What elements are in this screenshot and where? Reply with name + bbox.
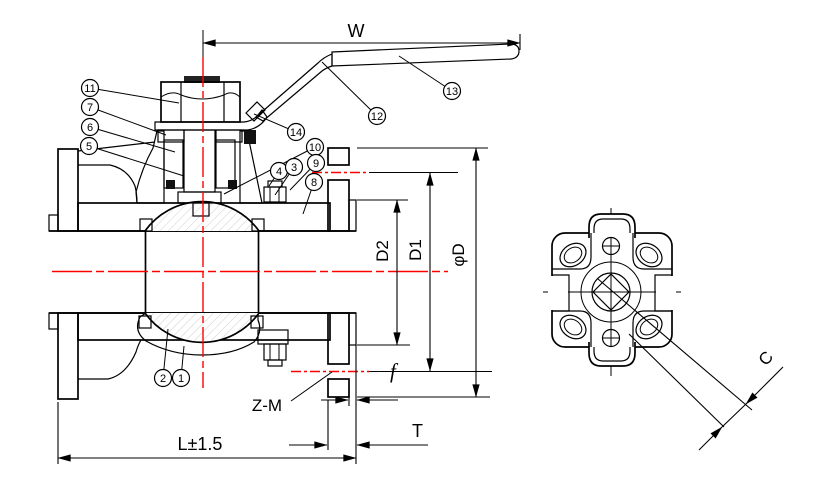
dim-w-label: W	[348, 21, 365, 41]
stem-nut	[161, 76, 240, 122]
dimension-t: T	[289, 345, 428, 464]
callout-leader-12	[322, 62, 377, 116]
callout-number-12: 12	[371, 111, 383, 123]
drawing-canvas: W φD D1 D2 f	[0, 0, 835, 500]
dimension-l: L±1.5	[58, 402, 356, 464]
dimension-f: f	[321, 359, 399, 406]
dimension-zm: Z-M	[252, 372, 332, 415]
stem	[184, 130, 215, 192]
raised-face-top	[349, 200, 356, 231]
ball-valve-technical-drawing: W φD D1 D2 f	[0, 0, 835, 500]
callout-number-14: 14	[290, 127, 302, 139]
centerlines	[52, 30, 448, 388]
dimension-d1: D1	[369, 173, 492, 372]
callout-number-9: 9	[313, 158, 319, 170]
handle	[155, 44, 519, 130]
dimension-d2: D2	[357, 200, 410, 345]
dim-l-label: L±1.5	[178, 434, 223, 454]
callout-number-3: 3	[291, 162, 297, 174]
dim-d2-label: D2	[373, 240, 392, 262]
raised-face-bottom	[349, 313, 356, 345]
handle-grip	[332, 44, 519, 66]
dim-c-label: C	[755, 347, 777, 369]
callout-number-8: 8	[311, 177, 317, 189]
edge-notches	[548, 275, 676, 311]
callout-number-1: 1	[178, 373, 184, 385]
callout-number-13: 13	[446, 86, 458, 98]
handle-base-plate	[155, 110, 267, 130]
stop-block	[244, 130, 256, 144]
callout-balloons: 1176514121310439821	[81, 56, 461, 387]
dim-phiD-label: φD	[449, 243, 468, 266]
callout-number-10: 10	[309, 142, 321, 154]
end-view: C	[543, 208, 783, 450]
callout-leader-11	[90, 88, 179, 103]
callout-number-4: 4	[276, 166, 282, 178]
dim-zm-label: Z-M	[252, 396, 282, 415]
dim-t-label: T	[412, 421, 423, 441]
dim-d1-label: D1	[406, 239, 425, 261]
callout-number-2: 2	[160, 373, 166, 385]
callout-number-5: 5	[86, 141, 92, 153]
callout-number-6: 6	[87, 122, 93, 134]
dimension-phiD: φD	[357, 148, 490, 397]
main-section-view: W φD D1 D2 f	[49, 21, 520, 464]
stem-lobes	[589, 214, 635, 366]
seal-left	[166, 180, 175, 189]
callout-number-7: 7	[87, 102, 93, 114]
handle-lever	[256, 54, 332, 121]
callout-number-11: 11	[84, 83, 95, 95]
